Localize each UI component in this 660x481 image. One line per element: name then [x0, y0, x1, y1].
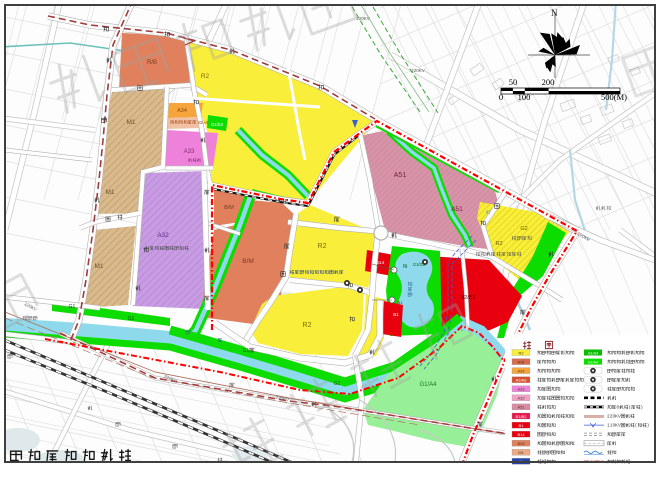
svg-text:B/M: B/M — [242, 258, 254, 265]
svg-text:G1: G1 — [69, 304, 76, 310]
svg-text:B/M: B/M — [517, 441, 524, 446]
svg-text:V: V — [618, 414, 621, 419]
svg-text:A34: A34 — [517, 368, 525, 373]
svg-text:220KV: 220KV — [356, 16, 370, 21]
svg-text:B1/B2: B1/B2 — [516, 414, 528, 419]
svg-text:N: N — [551, 8, 558, 18]
svg-text:R/B: R/B — [518, 359, 525, 364]
svg-text:500(M): 500(M) — [601, 92, 627, 102]
svg-text:G1/A4: G1/A4 — [419, 382, 437, 388]
svg-text:100: 100 — [518, 92, 531, 102]
svg-text:R2: R2 — [318, 243, 327, 250]
svg-text:32/A6: 32/A6 — [198, 120, 210, 125]
svg-text:M1: M1 — [126, 119, 135, 126]
svg-text:G2: G2 — [520, 226, 527, 232]
svg-text:G1/S4: G1/S4 — [588, 351, 598, 355]
svg-text:B1: B1 — [398, 300, 404, 305]
svg-text:A51: A51 — [517, 405, 525, 410]
svg-text:B/M: B/M — [224, 205, 234, 211]
svg-text:B2/B1: B2/B1 — [461, 295, 476, 301]
svg-text:V: V — [618, 423, 621, 428]
svg-text:G1/S3: G1/S3 — [211, 122, 224, 127]
svg-text:50: 50 — [509, 77, 518, 87]
svg-text:220KV: 220KV — [411, 68, 425, 73]
svg-text:A2/A6: A2/A6 — [516, 378, 528, 383]
svg-text:G1: G1 — [128, 316, 135, 322]
svg-text:R2: R2 — [201, 73, 210, 80]
svg-text:A33: A33 — [184, 149, 195, 155]
svg-text:A51: A51 — [451, 206, 463, 213]
svg-text:B1: B1 — [393, 312, 399, 317]
svg-text:M1: M1 — [94, 263, 103, 270]
svg-text:A34: A34 — [177, 108, 187, 114]
svg-text:A32: A32 — [157, 232, 169, 239]
svg-text:M1: M1 — [105, 189, 114, 196]
svg-text:0: 0 — [499, 92, 503, 102]
svg-text:G1: G1 — [334, 381, 341, 387]
svg-text:A32: A32 — [517, 396, 525, 401]
svg-text:G1: G1 — [243, 348, 250, 354]
svg-text:R/B: R/B — [147, 60, 157, 66]
svg-text:M1: M1 — [518, 450, 524, 455]
svg-text:A33: A33 — [517, 387, 525, 392]
svg-text:B14: B14 — [517, 432, 525, 437]
svg-text:R2: R2 — [518, 350, 524, 355]
svg-text:B1: B1 — [519, 423, 525, 428]
svg-text:R2: R2 — [495, 241, 502, 247]
svg-text:A51: A51 — [394, 172, 407, 179]
svg-text:R2: R2 — [303, 322, 312, 329]
svg-text:G1/A4: G1/A4 — [588, 360, 598, 364]
svg-text:200: 200 — [542, 77, 555, 87]
